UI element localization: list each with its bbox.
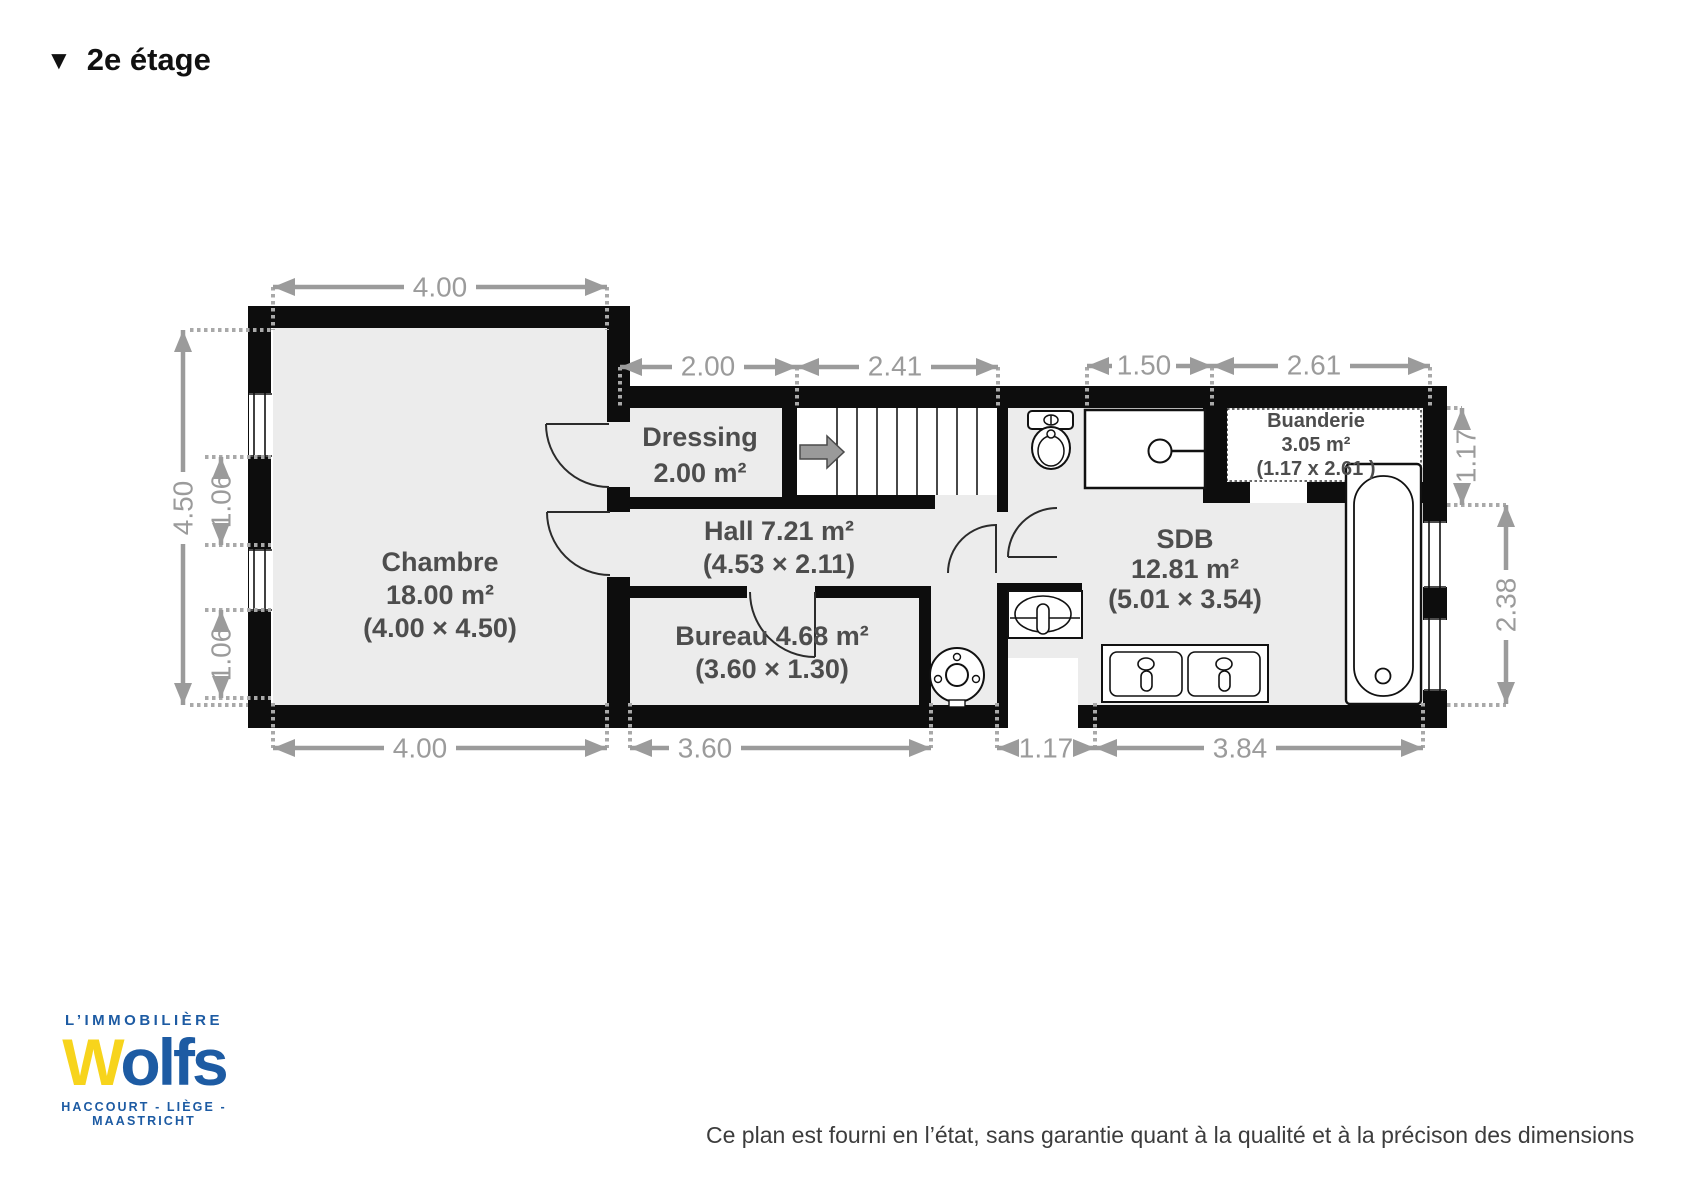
svg-text:12.81 m²: 12.81 m² — [1131, 554, 1239, 584]
dim-bottom-117: 1.17 — [1019, 733, 1074, 764]
dim-right-238: 2.38 — [1491, 578, 1522, 633]
svg-text:Chambre: Chambre — [381, 547, 498, 577]
dim-top-400: 4.00 — [413, 272, 468, 303]
window — [249, 393, 272, 457]
logo-w-letter: W — [62, 1025, 120, 1099]
dim-left-106b: 1.06 — [206, 627, 237, 682]
svg-text:(1.17 x 2.61 ): (1.17 x 2.61 ) — [1257, 458, 1376, 480]
svg-text:3.05 m²: 3.05 m² — [1282, 434, 1351, 456]
dim-upper-241: 2.41 — [868, 351, 923, 382]
dim-upper-261: 2.61 — [1287, 350, 1342, 381]
dim-bottom-384: 3.84 — [1213, 733, 1268, 764]
dim-bottom-360: 3.60 — [678, 733, 733, 764]
svg-text:SDB: SDB — [1156, 524, 1213, 554]
double-washbasin-icon — [1102, 645, 1268, 702]
svg-text:Buanderie: Buanderie — [1267, 410, 1365, 432]
room-label-chambre: Chambre 18.00 m² (4.00 × 4.50) — [363, 547, 517, 643]
logo-rest-letters: olfs — [120, 1025, 225, 1099]
floor-plan-drawing: 4.00 2.00 2.41 1.50 2.61 4.00 3.60 1.17 … — [0, 0, 1699, 1200]
dim-upper-200: 2.00 — [681, 351, 736, 382]
svg-text:Dressing: Dressing — [642, 422, 758, 452]
svg-text:Hall 7.21 m²: Hall 7.21 m² — [704, 516, 854, 546]
svg-text:(4.00 × 4.50): (4.00 × 4.50) — [363, 613, 517, 643]
staircase — [797, 408, 997, 495]
dim-left-106a: 1.06 — [206, 474, 237, 529]
svg-text:2.00 m²: 2.00 m² — [653, 458, 746, 488]
dim-bottom-400: 4.00 — [393, 733, 448, 764]
svg-text:(5.01 × 3.54): (5.01 × 3.54) — [1108, 584, 1262, 614]
disclaimer-text: Ce plan est fourni en l’état, sans garan… — [706, 1122, 1634, 1149]
dim-right-117: 1.17 — [1451, 429, 1482, 484]
bathtub-icon — [1346, 464, 1421, 704]
washbasin-icon — [1008, 591, 1082, 638]
window — [1424, 521, 1446, 588]
window — [1424, 618, 1446, 691]
svg-text:(4.53 × 2.11): (4.53 × 2.11) — [703, 549, 855, 579]
floor-plan-page: ▼ 2e étage — [0, 0, 1699, 1200]
shower-icon — [1085, 410, 1205, 488]
agency-logo: L’IMMOBILIÈRE Wolfs HACCOURT - LIÈGE - M… — [36, 1012, 252, 1128]
svg-text:18.00 m²: 18.00 m² — [386, 580, 494, 610]
dim-left-450: 4.50 — [168, 481, 199, 536]
window — [249, 549, 272, 611]
svg-text:(3.60 × 1.30): (3.60 × 1.30) — [695, 654, 849, 684]
logo-wordmark: Wolfs — [36, 1029, 252, 1096]
logo-cities: HACCOURT - LIÈGE - MAASTRICHT — [36, 1100, 252, 1128]
svg-text:Bureau 4.68 m²: Bureau 4.68 m² — [675, 621, 869, 651]
toilet-icon — [1028, 411, 1073, 469]
dim-upper-150: 1.50 — [1117, 350, 1172, 381]
